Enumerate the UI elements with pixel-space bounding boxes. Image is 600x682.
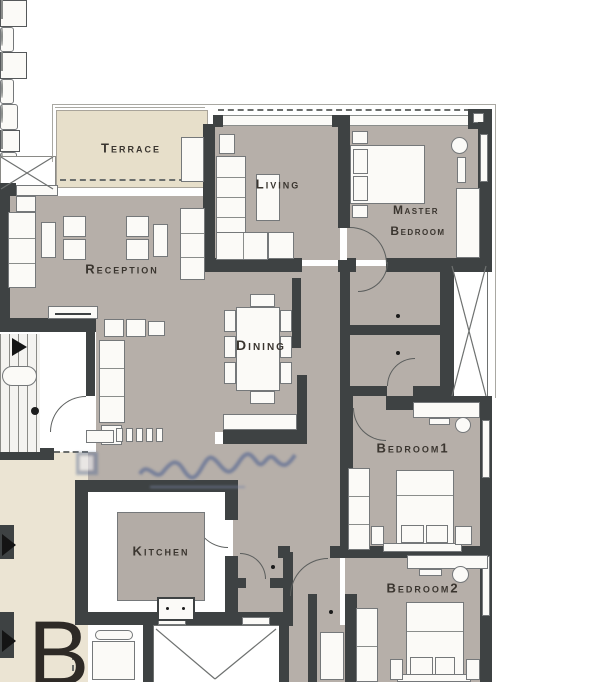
sink-drain [166,607,169,610]
armchair [63,216,86,237]
dining-chair [224,310,236,332]
service-shaft [452,266,488,398]
kitchen-sink [157,597,195,621]
sideboard [223,414,297,430]
toilet [0,27,14,52]
wall-segment [75,480,238,492]
wall-segment [238,578,246,588]
desk-drawer [429,418,450,425]
room-label-bedroom2: Bedroom2 [386,581,459,596]
headboard [383,543,462,552]
vent-grille [146,428,153,442]
pillow [353,176,368,201]
desk-chair [455,417,471,433]
hall-floor [88,444,343,480]
corner-table [268,232,294,259]
wall-segment [345,325,442,335]
machine [92,641,135,680]
wall-segment [86,332,95,396]
window-dashed-line [218,109,470,111]
elevator-cab [153,625,281,682]
chaise [99,340,125,423]
vent-grille [136,428,143,442]
building-outline [495,104,496,398]
building-outline [55,107,205,108]
wall-segment [345,386,387,396]
headboard [397,674,471,682]
room-label-living: Living [256,177,300,192]
sofa [216,156,246,234]
armchair [16,196,36,212]
wall-segment [292,278,301,348]
bath-cabinet [320,632,344,680]
pouf [148,321,165,336]
console-shelf [48,306,98,319]
nightstand [390,659,403,680]
arrow-right-icon [12,338,27,356]
room-label-master-line1: Master [393,203,439,217]
dining-chair [224,362,236,384]
sofa [216,232,268,260]
dining-chair [280,310,292,332]
armchair [63,239,86,260]
stair-handrail [2,366,37,386]
side-table [153,224,168,257]
stair-start-dot [31,407,39,415]
nightstand [466,659,480,680]
building-outline [52,104,53,162]
wall-segment [338,126,350,228]
room-label-master-line2: Bedroom [390,224,445,238]
nightstand [371,526,384,545]
room-label-kitchen: Kitchen [133,544,190,559]
dining-chair [224,336,236,358]
wall-segment [279,625,289,682]
black-triangle-icon [2,630,16,652]
threshold-dashed [54,451,88,453]
sink-drain [396,314,400,318]
wall-segment [225,556,238,625]
window [482,420,490,478]
sink-drain [271,565,275,569]
armchair [126,239,149,260]
room-label-bedroom1: Bedroom1 [376,441,449,456]
wall-segment [386,258,492,272]
sink [0,52,27,79]
wall-segment [203,258,302,272]
vent-grille [156,428,163,442]
room-label-reception: Reception [85,262,158,277]
sink-drain [396,351,400,355]
wall-segment [308,594,317,682]
room-label-terrace: Terrace [101,141,161,156]
wall-segment [0,183,16,196]
window [480,134,488,182]
building-outline [52,104,496,105]
dining-chair [250,391,275,404]
wardrobe [348,468,370,550]
pillow [435,657,455,675]
dining-chair [250,294,275,307]
black-triangle-icon [2,534,16,556]
dresser [457,157,466,183]
room-label-dining: Dining [236,337,286,353]
nightstand [455,526,472,545]
pillow [401,525,424,543]
outdoor-seat [181,137,204,182]
sofa [180,208,205,280]
window [242,617,270,625]
wardrobe [356,608,378,682]
wardrobe [456,188,480,258]
desk-drawer [419,569,442,576]
pouf [126,319,146,337]
sink-drain [182,607,185,610]
armchair [126,216,149,237]
wall-segment [440,266,454,396]
plant-circle [451,137,468,154]
sofa [8,212,36,288]
wall-segment [143,625,153,682]
side-table [219,134,235,154]
vent-grille [86,430,114,443]
toilet [0,79,14,104]
vent-grille [116,428,123,442]
toilet [0,104,18,130]
unit-letter: B [28,608,89,682]
vent-grille [126,428,133,442]
pillow [426,525,448,543]
pillow [410,657,433,675]
wall-segment [0,318,96,332]
window [16,185,58,196]
wall-segment [223,430,303,444]
sink [0,130,20,152]
sink [0,0,27,27]
side-table [41,222,56,258]
desk [413,402,480,418]
floor-plan: Terrace Living Master Bedroom Reception … [0,0,600,682]
pillow [353,149,368,174]
nightstand [352,205,368,218]
nightstand [352,131,368,144]
dining-chair [280,362,292,384]
desk [407,555,488,569]
pouf [104,319,124,337]
wall-segment [413,386,452,396]
table-oval [95,630,133,640]
sink-drain [329,610,333,614]
